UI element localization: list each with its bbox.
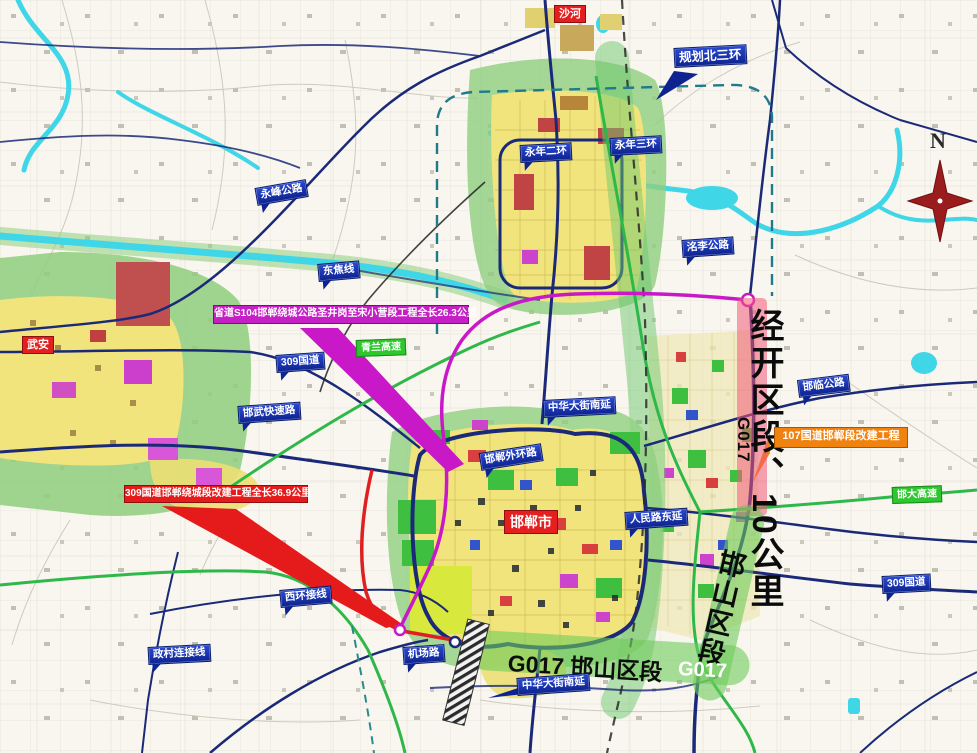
city-label-wuan: 武安: [22, 336, 54, 354]
compass-north-label: N: [930, 128, 946, 154]
banner-s104-project: 省道S104邯郸绕城公路圣井岗至宋小营段工程全长26.3公里: [213, 305, 469, 324]
section-mark-g017-band-end: G017: [677, 658, 727, 684]
banner-g309-project: 309国道邯郸绕城段改建工程全长36.9公里: [124, 485, 308, 503]
road-label-yongnian-3rd-ring: 永年三环: [610, 135, 663, 155]
planning-map: 永峰公路 东焦线 309国道 邯武快速路 洺李公路 永年二环 永年三环 规划北三…: [0, 0, 977, 753]
city-label-shahe: 沙河: [554, 5, 586, 23]
road-label-g309-east: 309国道: [882, 573, 931, 593]
section-mark-g017-side: G017: [733, 417, 753, 463]
road-label-planned-north-3rd-ring: 规划北三环: [673, 44, 746, 68]
section-mark-jingkai: 经开区段、10公里: [740, 308, 789, 648]
road-label-yongnian-2nd-ring: 永年二环: [520, 142, 573, 162]
road-label-airport-road: 机场路: [402, 644, 445, 664]
expressway-label-qinglan: 青兰高速: [356, 338, 407, 357]
road-label-dongjiao: 东焦线: [317, 260, 360, 281]
road-label-g309-west: 309国道: [275, 352, 325, 373]
banner-g107-project: 107国道邯郸段改建工程: [774, 427, 908, 448]
road-label-zhengcun-connector: 政村连接线: [148, 644, 211, 665]
wuan-urban-area: [0, 252, 258, 516]
city-label-handan: 邯郸市: [504, 510, 558, 534]
road-label-mingli: 洺李公路: [681, 236, 734, 257]
expressway-label-handa: 邯大高速: [892, 485, 943, 504]
